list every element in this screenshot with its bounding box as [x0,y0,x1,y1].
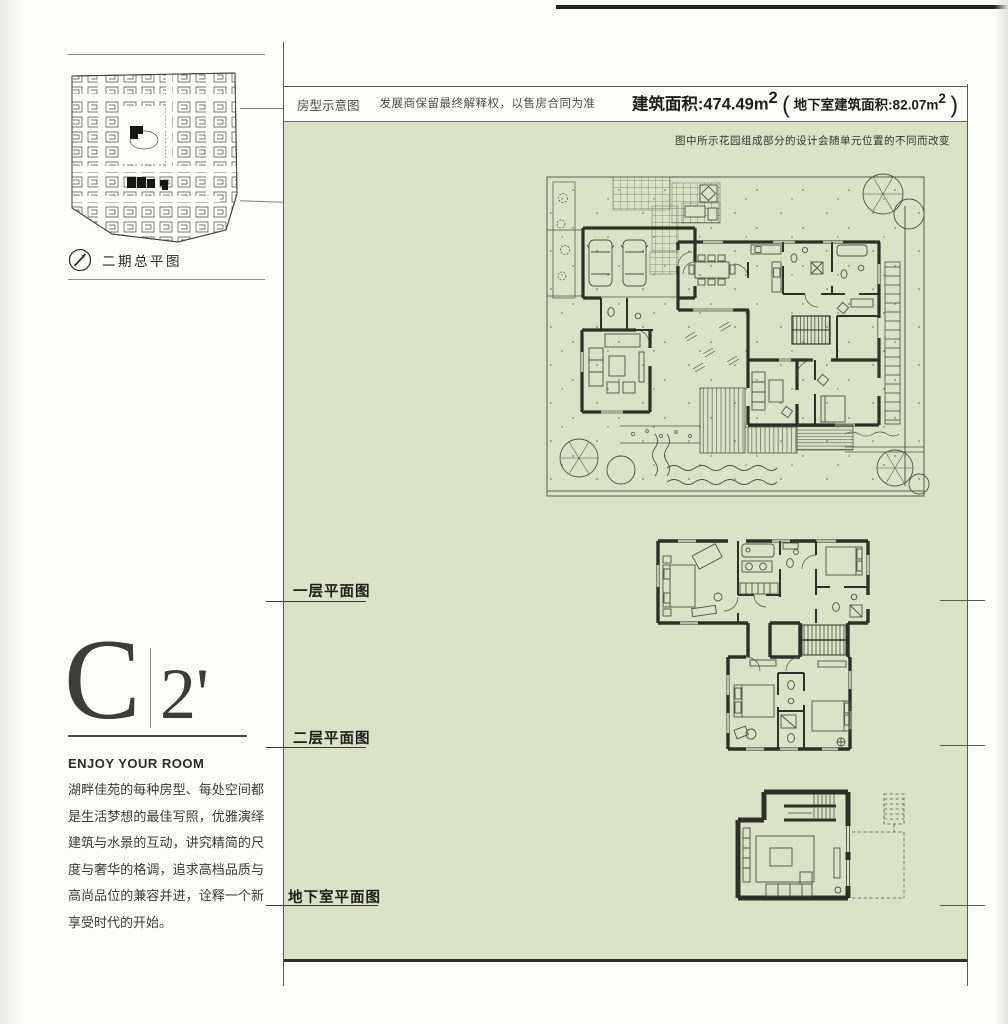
unit-code: C [64,622,141,737]
label-basement: 地下室平面图 [288,886,381,907]
header-top-border [283,86,968,87]
panel-right-border [967,84,968,986]
site-map-caption: 二期总平图 [102,250,182,270]
compass-icon [66,246,96,276]
unit-variant: 2' [160,658,209,730]
stairs [792,316,830,344]
brochure-page: { "sidebar": { "site_map_caption": "二期总平… [0,0,1008,1024]
plan-type-label: 房型示意图 [297,95,360,114]
header-left: 房型示意图 发展商保留最终解释权，以售房合同为准 [297,95,596,114]
sidebar-mid-rule [68,279,265,280]
marketing-description: 湖畔佳苑的每种房型、每处空间都是生活梦想的最佳写照，优雅演绎建筑与水景的互动，讲… [68,777,264,937]
reg-tick [940,905,985,906]
area-statement: 建筑面积:474.49m2 ( 地下室建筑面积:82.07m2 ) [632,89,958,118]
map-callout-line [240,200,283,203]
stairs [802,625,846,655]
deck [700,388,745,453]
disclaimer-text: 发展商保留最终解释权，以售房合同为准 [380,95,596,114]
first-floor-plan-drawing [543,166,939,500]
label-second-underline [266,747,366,748]
label-second-floor: 二层平面图 [293,727,371,748]
map-callout-line [240,108,283,109]
basement-area-sup: 2 [938,91,946,106]
basement-plan-drawing [728,786,938,911]
stairs [784,794,836,820]
label-basement-underline [266,905,378,906]
deck-lower [748,427,797,453]
tagline: ENJOY YOUR ROOM [68,756,204,771]
furniture [743,828,841,896]
paren-open: ( [782,91,790,117]
trellis [885,262,900,424]
reg-tick [940,745,985,746]
scan-edge-line [556,5,1008,9]
sidebar-top-rule [68,54,265,55]
unit-rule [68,735,247,737]
label-first-underline [266,601,366,602]
upper-floor-outline [852,794,904,898]
paren-close: ) [950,91,958,117]
second-floor-plan-drawing [650,535,875,755]
label-first-floor: 一层平面图 [293,580,371,601]
area-sup: 2 [769,89,778,107]
garden-note: 图中所示花园组成部分的设计会随单元位置的不同而改变 [675,133,950,148]
total-area: 建筑面积:474.49m [632,95,769,113]
unit-code-divider [150,648,151,728]
patio [797,425,853,450]
site-map [68,70,240,248]
basement-area: 地下室建筑面积:82.07m [790,97,939,112]
reg-tick [940,600,985,601]
